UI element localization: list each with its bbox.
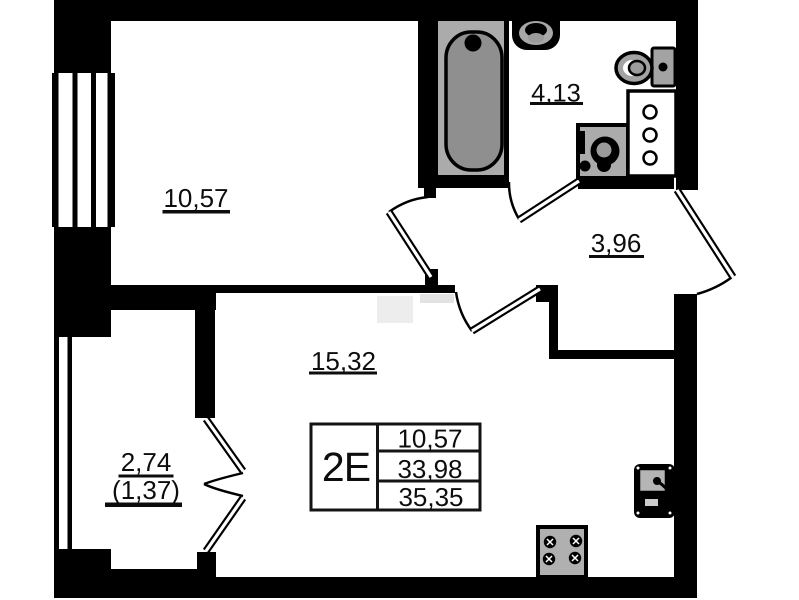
svg-text:33,98: 33,98: [397, 454, 462, 484]
svg-text:35,35: 35,35: [398, 482, 463, 512]
svg-text:(1,37): (1,37): [112, 475, 180, 505]
svg-text:10,57: 10,57: [163, 183, 228, 213]
svg-text:2,74: 2,74: [121, 447, 172, 477]
svg-text:2E: 2E: [322, 444, 370, 490]
svg-text:10,57: 10,57: [397, 424, 462, 454]
svg-text:3,96: 3,96: [591, 228, 642, 258]
